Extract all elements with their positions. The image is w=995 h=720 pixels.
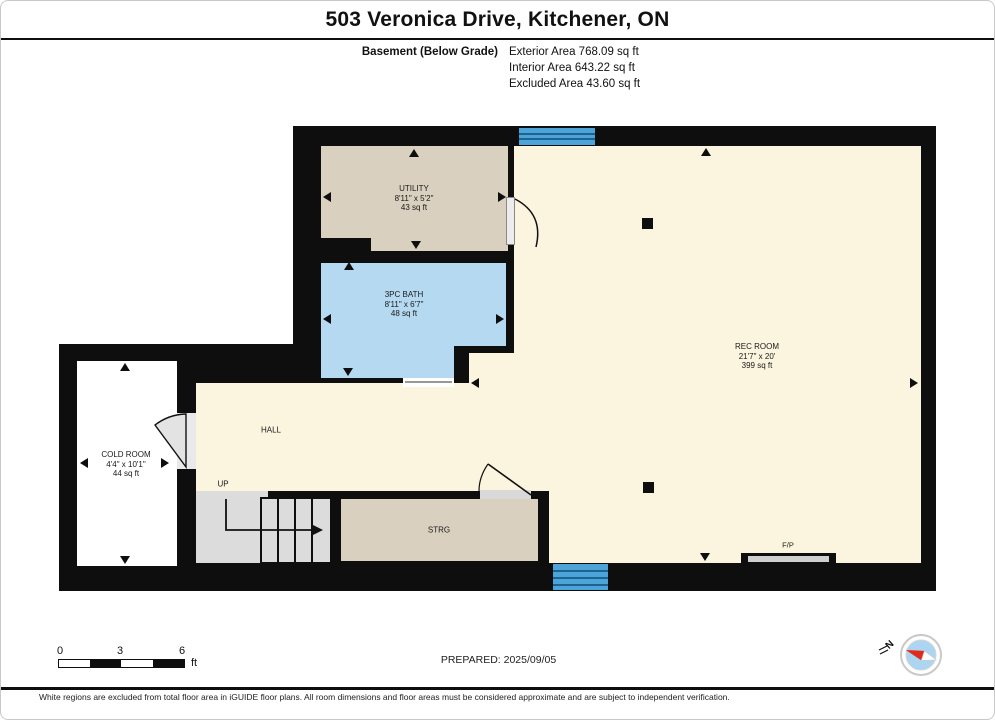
compass: N — [876, 628, 960, 682]
fireplace-hearth — [748, 556, 829, 562]
measure-arrow-down-cold — [120, 556, 130, 564]
room-name: COLD ROOM — [101, 450, 150, 460]
window-mullion — [553, 570, 608, 572]
support-column — [642, 218, 653, 229]
disclaimer-text: White regions are excluded from total fl… — [39, 692, 730, 702]
room-dims: 8'11" x 5'2" — [395, 193, 434, 203]
room-label-hall: HALL — [261, 426, 281, 435]
stair-tread — [277, 497, 279, 562]
room-dims: 21'7" x 20' — [735, 351, 779, 361]
label-fireplace: F/P — [782, 541, 794, 550]
floorplan-page: 503 Veronica Drive, Kitchener, ON Baseme… — [0, 0, 995, 720]
door-leaf-utility — [506, 197, 515, 245]
measure-arrow-up-cold — [120, 363, 130, 371]
floor-plan: UTILITY 8'11" x 5'2" 43 sq ft 3PC BATH 8… — [1, 1, 995, 720]
window-mullion — [519, 133, 595, 135]
door-slider-bath — [403, 378, 454, 387]
room-label-cold-room: COLD ROOM 4'4" x 10'1" 44 sq ft — [101, 450, 150, 479]
measure-arrow-right-bath — [496, 314, 504, 324]
room-label-bath: 3PC BATH 8'11" x 6'7" 48 sq ft — [385, 290, 424, 319]
measure-arrow-down-bath — [343, 368, 353, 376]
room-utility-step — [371, 238, 508, 251]
measure-arrow-up-rec — [701, 148, 711, 156]
compass-north-label: N — [884, 639, 897, 652]
stair-treads-outline — [260, 497, 332, 564]
room-area: 48 sq ft — [385, 309, 424, 319]
room-dims: 8'11" x 6'7" — [385, 299, 424, 309]
room-rec-room — [514, 146, 921, 563]
measure-arrow-down-utility — [411, 241, 421, 249]
room-dims: 4'4" x 10'1" — [101, 459, 150, 469]
room-area: 399 sq ft — [735, 361, 779, 371]
window-mullion — [553, 584, 608, 586]
measure-arrow-right-cold — [161, 458, 169, 468]
window-mullion — [519, 138, 595, 140]
support-column — [643, 482, 654, 493]
window-mullion — [553, 577, 608, 579]
room-label-storage: STRG — [428, 526, 450, 535]
north-letter: N — [884, 639, 897, 652]
footer-divider — [1, 687, 995, 690]
label-up: UP — [217, 480, 228, 489]
measure-arrow-left-bath — [323, 314, 331, 324]
measure-arrow-left-utility — [323, 192, 331, 202]
prepared-date: PREPARED: 2025/09/05 — [1, 654, 995, 666]
fireplace — [741, 553, 836, 565]
measure-arrow-left-rec — [471, 378, 479, 388]
stair-tread — [311, 497, 313, 562]
measure-arrow-down-rec — [700, 553, 710, 561]
door-opening-cold-room — [177, 413, 196, 469]
room-area: 43 sq ft — [395, 203, 434, 213]
door-slider-line — [405, 381, 452, 383]
measure-arrow-up-bath — [344, 262, 354, 270]
room-name: UTILITY — [395, 184, 434, 194]
stair-tread — [294, 497, 296, 562]
room-area: 44 sq ft — [101, 469, 150, 479]
room-label-rec-room: REC ROOM 21'7" x 20' 399 sq ft — [735, 342, 779, 371]
room-name: 3PC BATH — [385, 290, 424, 300]
measure-arrow-right-rec — [910, 378, 918, 388]
window-top — [519, 128, 595, 145]
room-name: REC ROOM — [735, 342, 779, 352]
room-bath-lower — [321, 346, 454, 378]
measure-arrow-up-utility — [409, 149, 419, 157]
measure-arrow-left-cold — [80, 458, 88, 468]
door-opening-storage — [480, 490, 531, 499]
window-bottom — [553, 564, 608, 590]
room-label-utility: UTILITY 8'11" x 5'2" 43 sq ft — [395, 184, 434, 213]
room-hall — [196, 383, 514, 491]
measure-arrow-right-utility — [498, 192, 506, 202]
